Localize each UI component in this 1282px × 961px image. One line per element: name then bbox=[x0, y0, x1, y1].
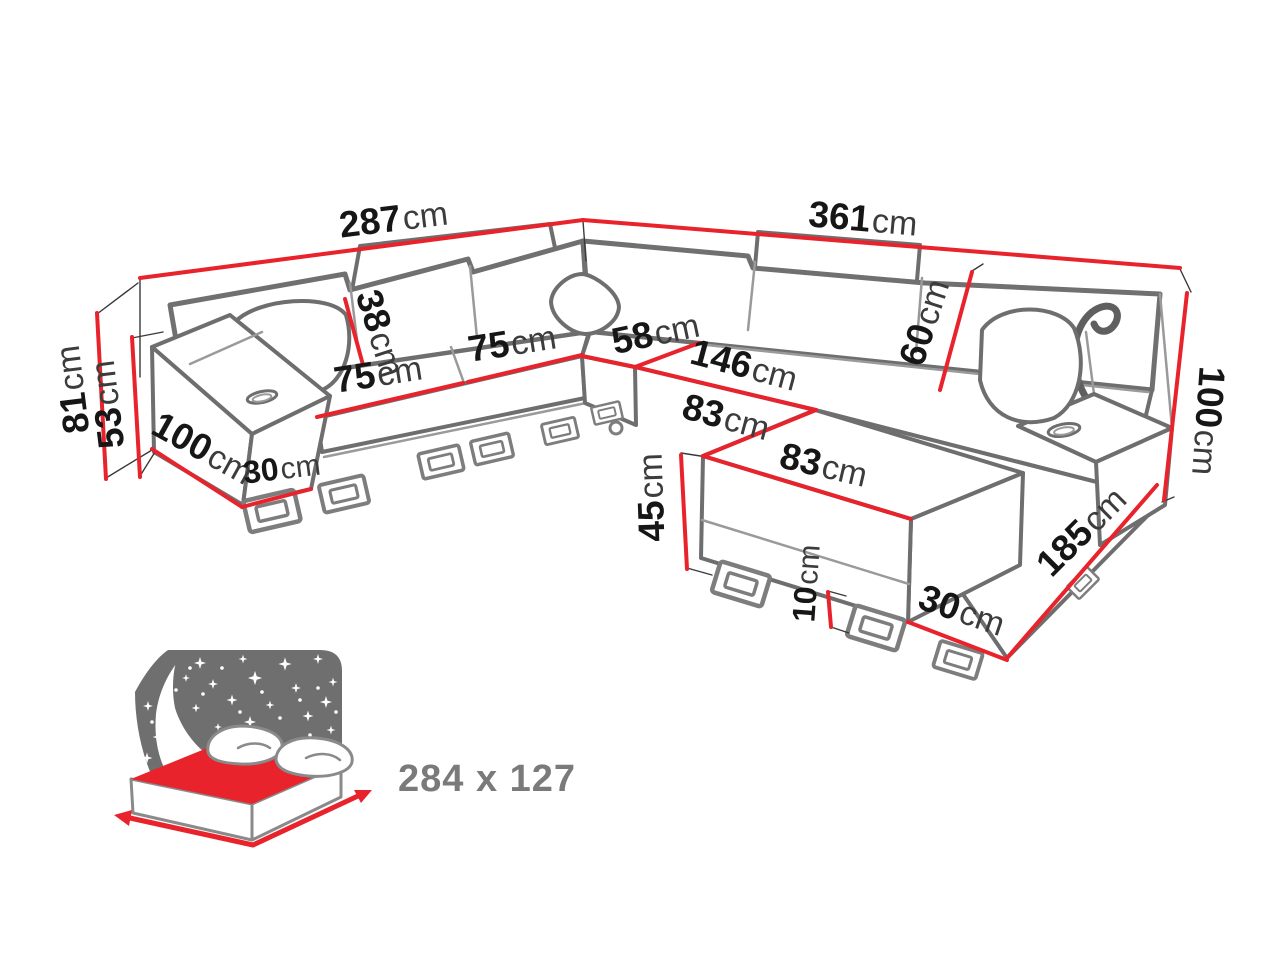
dimension-label-53: 53cm bbox=[81, 358, 132, 451]
pillow-right bbox=[980, 310, 1081, 423]
caster-wheel-icon bbox=[610, 422, 622, 434]
bed-pillow-right bbox=[276, 738, 352, 777]
sofa-dimension-svg: 287cm 361cm 81cm 53cm 100cm 30cm 75cm 38… bbox=[0, 0, 1282, 961]
furniture-dimension-diagram: 287cm 361cm 81cm 53cm 100cm 30cm 75cm 38… bbox=[0, 0, 1282, 961]
sleeping-function-icon bbox=[114, 650, 372, 845]
dimension-label-45: 45cm bbox=[628, 453, 672, 543]
dimension-label-100-right: 100cm bbox=[1184, 365, 1233, 477]
dimension-line-53 bbox=[132, 337, 140, 477]
sleeping-size-label: 284 x 127 bbox=[398, 758, 576, 800]
dimension-line-45 bbox=[681, 455, 687, 569]
dimension-line-100-right bbox=[1164, 293, 1187, 500]
